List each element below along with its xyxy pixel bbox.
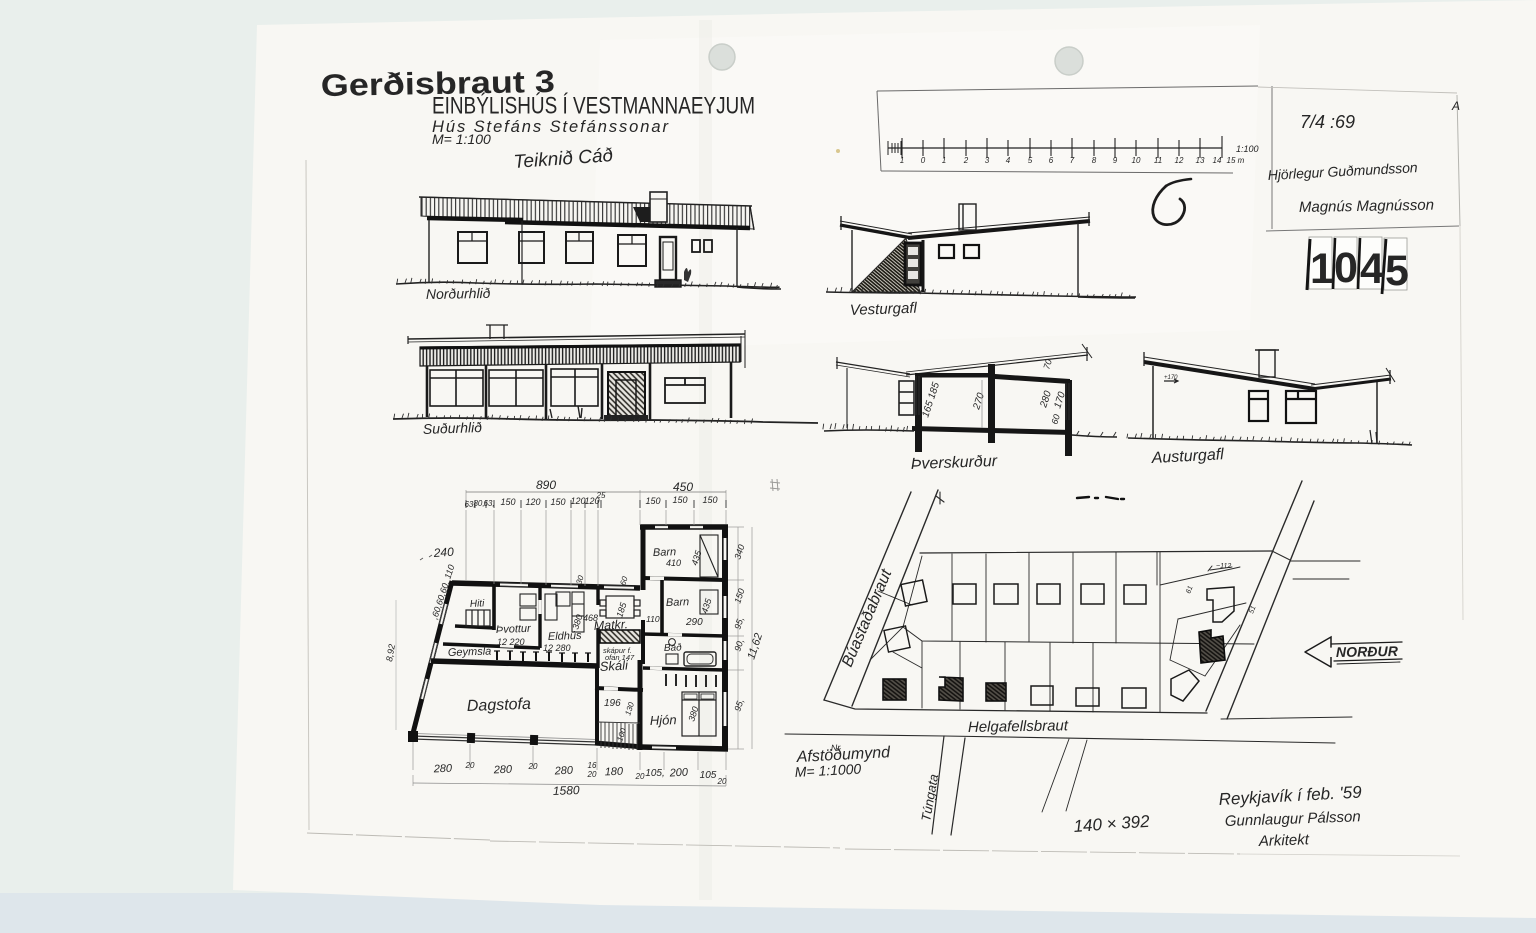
svg-text:20: 20 (717, 777, 727, 786)
svg-text:Matkr.: Matkr. (593, 617, 628, 633)
svg-text:+170: +170 (1164, 375, 1178, 381)
svg-text:Helgafellsbraut: Helgafellsbraut (968, 717, 1069, 736)
svg-text:1: 1 (1310, 245, 1334, 293)
svg-text:Bað: Bað (664, 642, 683, 654)
svg-text:105,: 105, (645, 768, 664, 779)
svg-text:150: 150 (672, 495, 687, 505)
svg-text:1: 1 (900, 156, 904, 165)
svg-text:14: 14 (1213, 156, 1222, 165)
svg-text:Hjón: Hjón (650, 712, 677, 728)
svg-text:12 220: 12 220 (497, 637, 525, 647)
svg-text:9: 9 (1113, 156, 1118, 165)
svg-text:150: 150 (645, 496, 660, 506)
svg-text:20: 20 (528, 762, 538, 771)
svg-text:16: 16 (588, 761, 597, 770)
svg-text:Þverskurður: Þverskurður (911, 453, 998, 473)
svg-text:290: 290 (685, 617, 703, 628)
svg-text:Suðurhlið: Suðurhlið (423, 419, 483, 437)
svg-text:0: 0 (921, 156, 926, 165)
svg-text:63,: 63, (483, 499, 494, 508)
svg-text:240: 240 (432, 545, 454, 560)
svg-text:468: 468 (583, 613, 598, 623)
svg-text:20: 20 (635, 772, 645, 781)
svg-text:Eldhús: Eldhús (548, 630, 583, 643)
svg-text:4: 4 (1360, 245, 1384, 293)
svg-text:1580: 1580 (553, 783, 580, 798)
svg-text:3: 3 (985, 156, 990, 165)
svg-text:Nr: Nr (831, 742, 842, 753)
svg-text:Magnús Magnússon: Magnús Magnússon (1299, 197, 1434, 216)
svg-text:Norðurhlið: Norðurhlið (426, 285, 491, 302)
svg-text:4: 4 (1006, 156, 1011, 165)
svg-text:1:100: 1:100 (1236, 144, 1259, 154)
svg-text:Arkitekt: Arkitekt (1258, 831, 1310, 850)
svg-text:150: 150 (550, 497, 565, 507)
svg-text:105: 105 (700, 770, 717, 781)
svg-text:13: 13 (1196, 156, 1205, 165)
svg-text:0: 0 (1334, 244, 1358, 292)
svg-text:20: 20 (465, 761, 475, 770)
svg-text:5: 5 (1385, 247, 1409, 295)
svg-text:25: 25 (596, 491, 606, 500)
svg-text:M= 1:100: M= 1:100 (432, 131, 491, 147)
svg-text:10: 10 (1132, 156, 1141, 165)
svg-text:A: A (1451, 99, 1460, 113)
svg-text:150: 150 (702, 495, 717, 505)
svg-text:20: 20 (587, 770, 597, 779)
svg-text:15: 15 (1227, 156, 1236, 165)
svg-text:Gerðisbraut 3: Gerðisbraut 3 (321, 64, 556, 103)
svg-text:~112: ~112 (1216, 563, 1231, 570)
svg-text:2: 2 (963, 156, 969, 165)
svg-text:7: 7 (1070, 156, 1075, 165)
svg-text:7/4 :69: 7/4 :69 (1300, 112, 1355, 132)
svg-text:1: 1 (942, 156, 946, 165)
svg-text:280: 280 (433, 763, 454, 776)
svg-text:m: m (1238, 156, 1245, 165)
svg-text:Hiti: Hiti (470, 598, 486, 610)
svg-text:NORÐUR: NORÐUR (1336, 643, 1399, 660)
svg-text:110: 110 (646, 614, 660, 624)
svg-text:12: 12 (1175, 156, 1184, 165)
svg-text:410: 410 (666, 558, 681, 568)
svg-text:Þvottur: Þvottur (496, 623, 533, 636)
svg-text:Dagstofa: Dagstofa (467, 696, 532, 715)
svg-text:8: 8 (1092, 156, 1097, 165)
svg-text:Barn: Barn (666, 596, 690, 609)
svg-text:120: 120 (570, 496, 585, 506)
svg-text:150: 150 (500, 497, 515, 507)
svg-text:Geymsla: Geymsla (448, 645, 492, 659)
svg-text:180: 180 (605, 766, 625, 779)
svg-text:200: 200 (668, 766, 689, 779)
svg-text:Skáli: Skáli (599, 657, 629, 674)
svg-text:890: 890 (536, 478, 556, 492)
svg-text:Vesturgafl: Vesturgafl (850, 300, 918, 319)
svg-text:5: 5 (1028, 156, 1033, 165)
svg-text:196: 196 (604, 698, 621, 709)
svg-text:11: 11 (1154, 156, 1162, 165)
svg-text:120: 120 (525, 497, 540, 507)
svg-text:12 280: 12 280 (543, 643, 571, 653)
svg-text:280: 280 (493, 764, 514, 777)
svg-text:450: 450 (673, 480, 693, 494)
svg-text:280: 280 (553, 764, 574, 777)
svg-text:6: 6 (1049, 156, 1054, 165)
